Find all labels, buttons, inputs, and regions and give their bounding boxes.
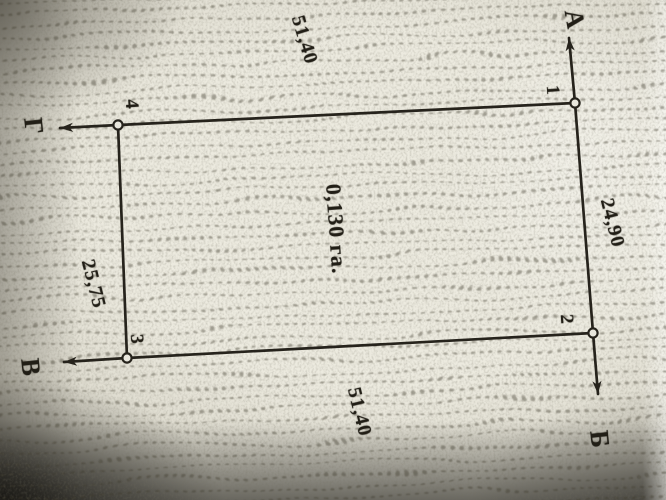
side-left (118, 125, 127, 358)
direction-label-v: В (14, 357, 46, 377)
point-3-label: 3 (125, 333, 148, 344)
side-right (575, 103, 593, 333)
arrow-to-v-icon (64, 358, 127, 362)
side-top (118, 103, 575, 125)
direction-label-g: Г (17, 116, 49, 136)
point-2-label: 2 (555, 313, 578, 324)
point-4-marker (113, 120, 122, 129)
arrow-to-a-icon (569, 38, 575, 103)
point-1-marker (570, 98, 579, 107)
point-3-marker (122, 353, 131, 362)
side-bottom (127, 333, 593, 358)
survey-plan-photo: А Б В Г 1 2 3 4 51,40 24,90 51,40 25,75 … (0, 0, 666, 500)
arrow-to-g-icon (60, 125, 118, 128)
direction-label-b: Б (583, 429, 615, 449)
point-4-label: 4 (120, 98, 143, 109)
point-2-marker (588, 328, 597, 337)
arrow-to-b-icon (593, 333, 598, 394)
point-1-label: 1 (541, 84, 564, 95)
